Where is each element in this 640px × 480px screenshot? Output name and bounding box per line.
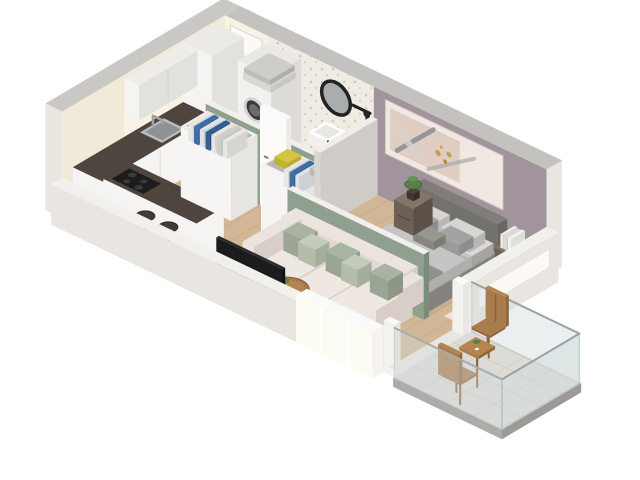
closet-b-garment-1-front (284, 170, 288, 189)
closet-a-garment-3-front (200, 129, 204, 148)
balcony-chair-1-back-side (506, 295, 509, 327)
closet-a-garment-5-front (211, 135, 215, 154)
bathroom-door-handle (265, 157, 268, 158)
books-2-front (504, 237, 507, 251)
closet-a-garment-2-front (194, 127, 198, 146)
burner-2 (123, 179, 130, 183)
books-1-front (500, 234, 503, 249)
closet-a-garment-4-front (206, 132, 210, 151)
balcony-door-jamb-1-side (463, 281, 469, 337)
closet-a-garment-6-front (217, 138, 221, 157)
closet-a-garment-1-front (188, 124, 192, 143)
balcony-door-jamb-1-front (452, 280, 463, 337)
closet-a-garment-7-front (223, 140, 227, 159)
floorplan-3d-view: 3D isometric floor plan of a studio apar… (0, 0, 640, 480)
sw-window-wall-side (373, 326, 384, 379)
partition-living-bedroom-side (424, 251, 429, 320)
kitchen-upper-cabinets-front (125, 78, 139, 120)
floorplan-svg (0, 0, 640, 480)
